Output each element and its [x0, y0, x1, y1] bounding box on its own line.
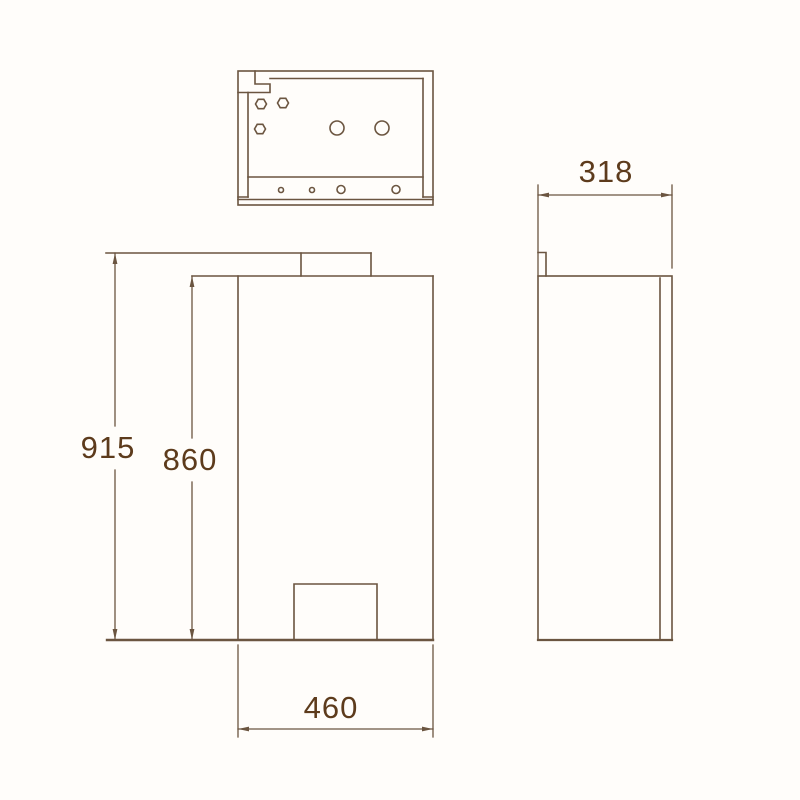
arrow-right-icon: [422, 727, 433, 732]
round-opening-icon: [330, 121, 344, 135]
three-view-drawing: [0, 0, 800, 800]
round-opening-icon: [375, 121, 389, 135]
mounting-hole-icon: [310, 188, 315, 193]
side-view-outline: [538, 276, 672, 640]
hex-fitting-icon: [255, 124, 266, 133]
arrow-left-icon: [238, 727, 249, 732]
extension-line: [538, 185, 672, 276]
mounting-hole-icon: [279, 188, 284, 193]
top-view-outline: [238, 71, 433, 205]
arrow-up-icon: [113, 253, 118, 264]
top-view-corner-bracket: [238, 71, 270, 93]
dimension-label-body-depth: 318: [556, 154, 656, 190]
arrow-down-icon: [113, 629, 118, 640]
side-view: [538, 253, 672, 641]
hex-fitting-icon: [256, 99, 267, 108]
mounting-hole-icon: [337, 186, 345, 194]
arrow-right-icon: [661, 193, 672, 198]
top-view: [238, 71, 433, 205]
arrow-left-icon: [538, 193, 549, 198]
side-view-collar-bump: [538, 253, 546, 277]
arrow-up-icon: [190, 276, 195, 287]
dimension-label-body-width: 460: [281, 690, 381, 726]
dimension-label-body-height: 860: [140, 442, 240, 478]
technical-drawing-page: 915 860 318 460: [0, 0, 800, 800]
mounting-hole-icon: [392, 186, 400, 194]
dimension-body-depth: [538, 185, 672, 276]
hex-fitting-icon: [278, 98, 289, 107]
access-panel: [294, 584, 377, 640]
flue-collar: [301, 253, 371, 276]
arrow-down-icon: [190, 629, 195, 640]
